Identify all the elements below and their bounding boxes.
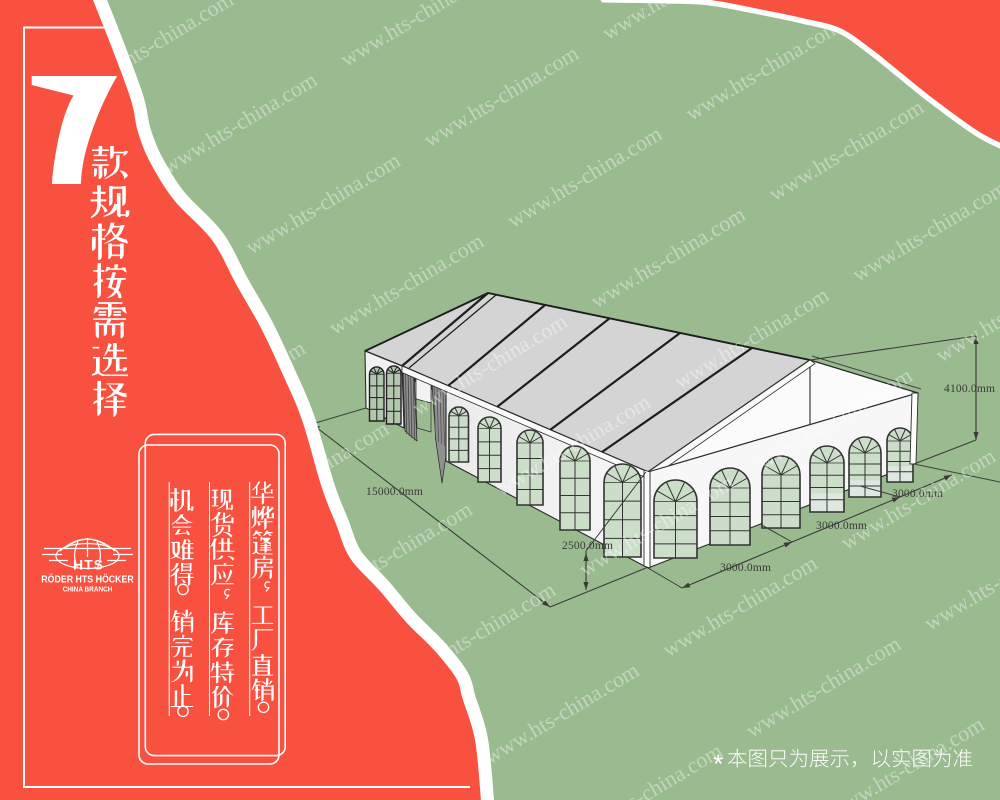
svg-text:HTS: HTS: [73, 557, 104, 573]
svg-text:15000.0mm: 15000.0mm: [366, 486, 423, 498]
svg-text:3000.0mm: 3000.0mm: [720, 562, 771, 574]
svg-text:RÖDER HTS HÖCKER: RÖDER HTS HÖCKER: [41, 574, 134, 586]
svg-text:4100.0mm: 4100.0mm: [944, 383, 995, 395]
svg-text:CHINA BRANCH: CHINA BRANCH: [63, 586, 113, 593]
svg-text:*: *: [713, 749, 724, 779]
